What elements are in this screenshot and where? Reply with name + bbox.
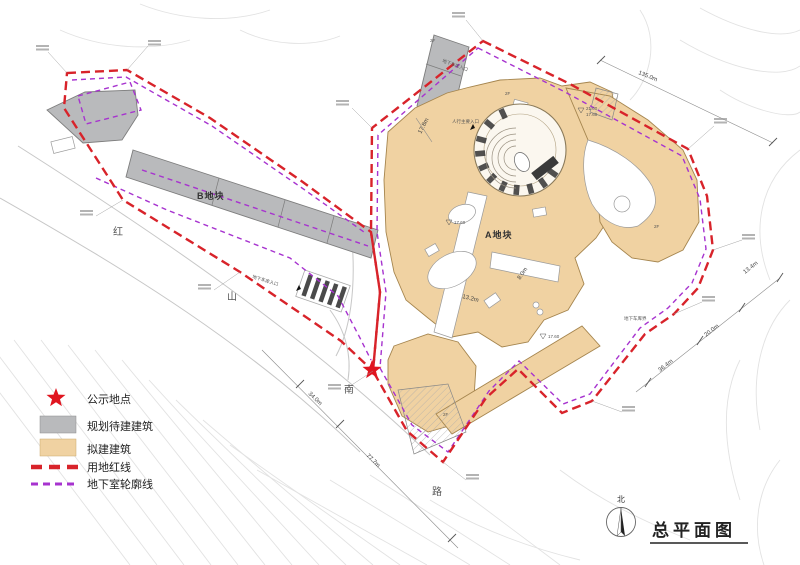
legend-tan-swatch [40,439,76,456]
legend-label-planned: 规划待建建筑 [87,419,153,433]
floor-label-3: 2F [443,412,449,417]
dim-bottom-2: 34.0m [307,391,323,407]
dim-right-3: 36.4m [658,359,675,374]
legend-gray-swatch [40,416,76,433]
road-name-char-4: 路 [432,485,442,498]
svg-text:17.60: 17.60 [586,112,598,117]
planned-building-pentagon [47,90,138,143]
north-arrow: 北 [607,495,636,537]
legend-label-notice: 公示地点 [87,393,131,406]
legend-label-proposed: 拟建建筑 [87,442,131,456]
detail-circle [537,309,543,315]
dim-bottom-1: 77.7m [365,453,381,469]
dim-top-right: 135.0m [637,70,658,83]
elevation-marker-3: 17.60 [540,334,560,339]
dim-right-2: 20.0m [704,324,721,339]
svg-text:17.60: 17.60 [548,334,560,339]
pedestrian-entrance-label: 人行主要入口 [452,118,479,125]
legend-star-icon [46,388,65,406]
drawing-title-text: 总平面图 [652,520,736,540]
road-name-char-3: 南 [344,383,354,396]
detail-circle [533,302,539,308]
garage-entrance-label: 地下车库入口 [251,273,279,288]
north-label: 北 [617,495,625,504]
floor-label-1: 2F [430,38,436,43]
site-plan-canvas: 135.0m 36.4m 20.0m 13.4m 34.0m 77.7m 17.… [0,0,800,565]
floor-label-2: 2F [505,91,511,96]
garage-boundary-label: 地下车库界 [624,315,647,322]
block-a-label: A地块 [485,229,513,240]
site-plan-drawing: 135.0m 36.4m 20.0m 13.4m 34.0m 77.7m 17.… [0,0,800,565]
drawing-title: 总平面图 [650,520,748,543]
block-b-label: B地块 [197,190,225,201]
courtyard-tree [614,196,630,212]
floor-label-4: 2F [654,224,660,229]
dim-right-1: 13.4m [743,261,760,276]
circular-building [474,104,566,196]
legend-label-basement: 地下室轮廓线 [87,477,153,491]
svg-text:17.60: 17.60 [454,220,466,225]
legend: 公示地点 规划待建建筑 拟建建筑 用地红线 地下室轮廓线 [31,388,153,491]
road-name-char-2: 山 [227,291,237,303]
legend-label-redline: 用地红线 [87,460,131,474]
svg-text:21.00: 21.00 [586,106,598,111]
crosswalk [296,270,351,312]
road-name-char-1: 红 [113,225,123,238]
small-outbuilding [51,137,75,154]
proposed-buildings [384,78,699,434]
